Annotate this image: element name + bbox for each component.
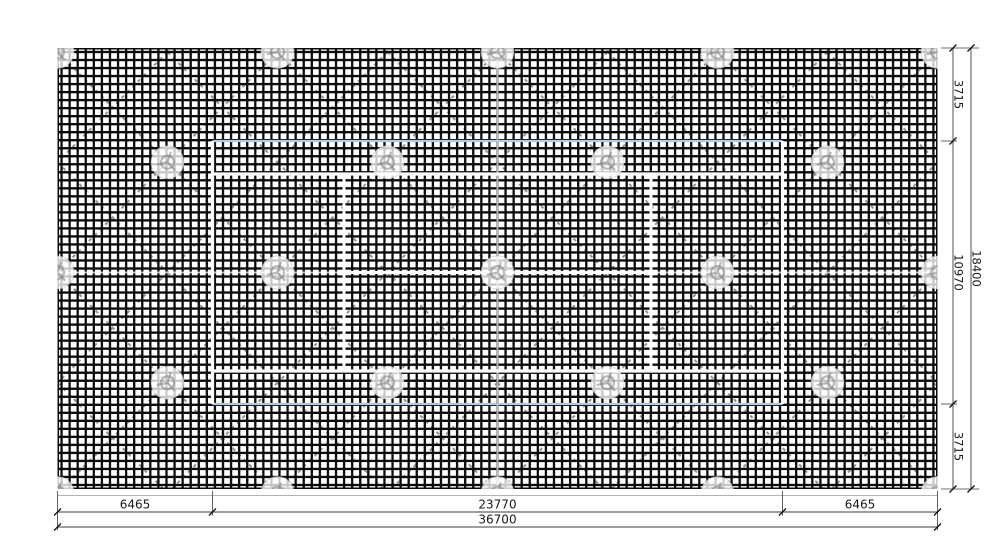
dim-label-bottom-total: 36700 — [478, 513, 516, 527]
mesh-area — [58, 48, 938, 489]
dim-label-bottom-right: 6465 — [845, 498, 876, 512]
bottom-dimensions: 6465 23770 6465 36700 — [54, 491, 941, 531]
dim-label-bottom-left: 6465 — [120, 498, 151, 512]
tennis-court-site-plan: 6465 23770 6465 36700 3715 10970 3715 18… — [0, 0, 1000, 560]
dim-label-right-top: 3715 — [952, 80, 966, 109]
dim-label-right-middle: 10970 — [952, 254, 966, 291]
dim-label-bottom-center: 23770 — [478, 498, 516, 512]
right-dimensions: 3715 10970 3715 18400 — [941, 45, 984, 493]
dim-label-right-bottom: 3715 — [952, 432, 966, 461]
dim-label-right-total: 18400 — [970, 250, 984, 287]
tree-symbols — [58, 48, 938, 489]
site-plan-page: 6465 23770 6465 36700 3715 10970 3715 18… — [0, 0, 1000, 560]
